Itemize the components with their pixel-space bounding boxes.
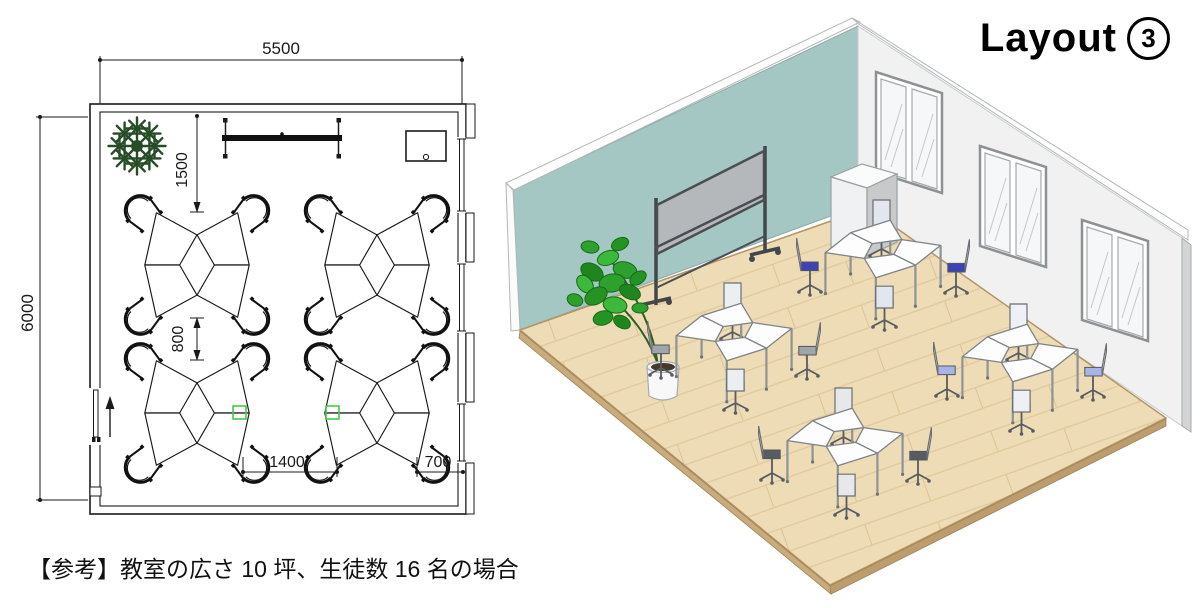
plan-windows xyxy=(457,104,476,514)
dim-label-6000: 6000 xyxy=(18,294,37,332)
dim-label-1400: 1400 xyxy=(269,454,305,471)
classroom-layout-diagram: 5500 6000 xyxy=(0,0,1200,608)
dimension-room-depth xyxy=(36,115,88,502)
screenshot-root: 5500 6000 xyxy=(0,0,1200,608)
window xyxy=(980,146,1046,267)
reference-caption: 【参考】教室の広さ 10 坪、生徒数 16 名の場合 xyxy=(28,550,519,584)
layout-number-badge: 3 xyxy=(1127,17,1170,60)
plan-cabinet xyxy=(406,131,446,161)
window xyxy=(1082,220,1148,341)
dimension-room-width xyxy=(98,56,464,104)
floor-plan: 5500 6000 xyxy=(18,39,475,514)
dim-label-700: 700 xyxy=(425,454,452,471)
dim-label-1500: 1500 xyxy=(174,152,191,188)
wall-end-cap xyxy=(1182,238,1191,432)
dim-label-800: 800 xyxy=(170,326,187,353)
iso-view xyxy=(506,18,1191,594)
plan-plant-icon xyxy=(109,118,166,175)
layout-title-text: Layout xyxy=(980,16,1117,61)
layout-title: Layout 3 xyxy=(980,16,1170,61)
dim-label-5500: 5500 xyxy=(262,39,300,58)
